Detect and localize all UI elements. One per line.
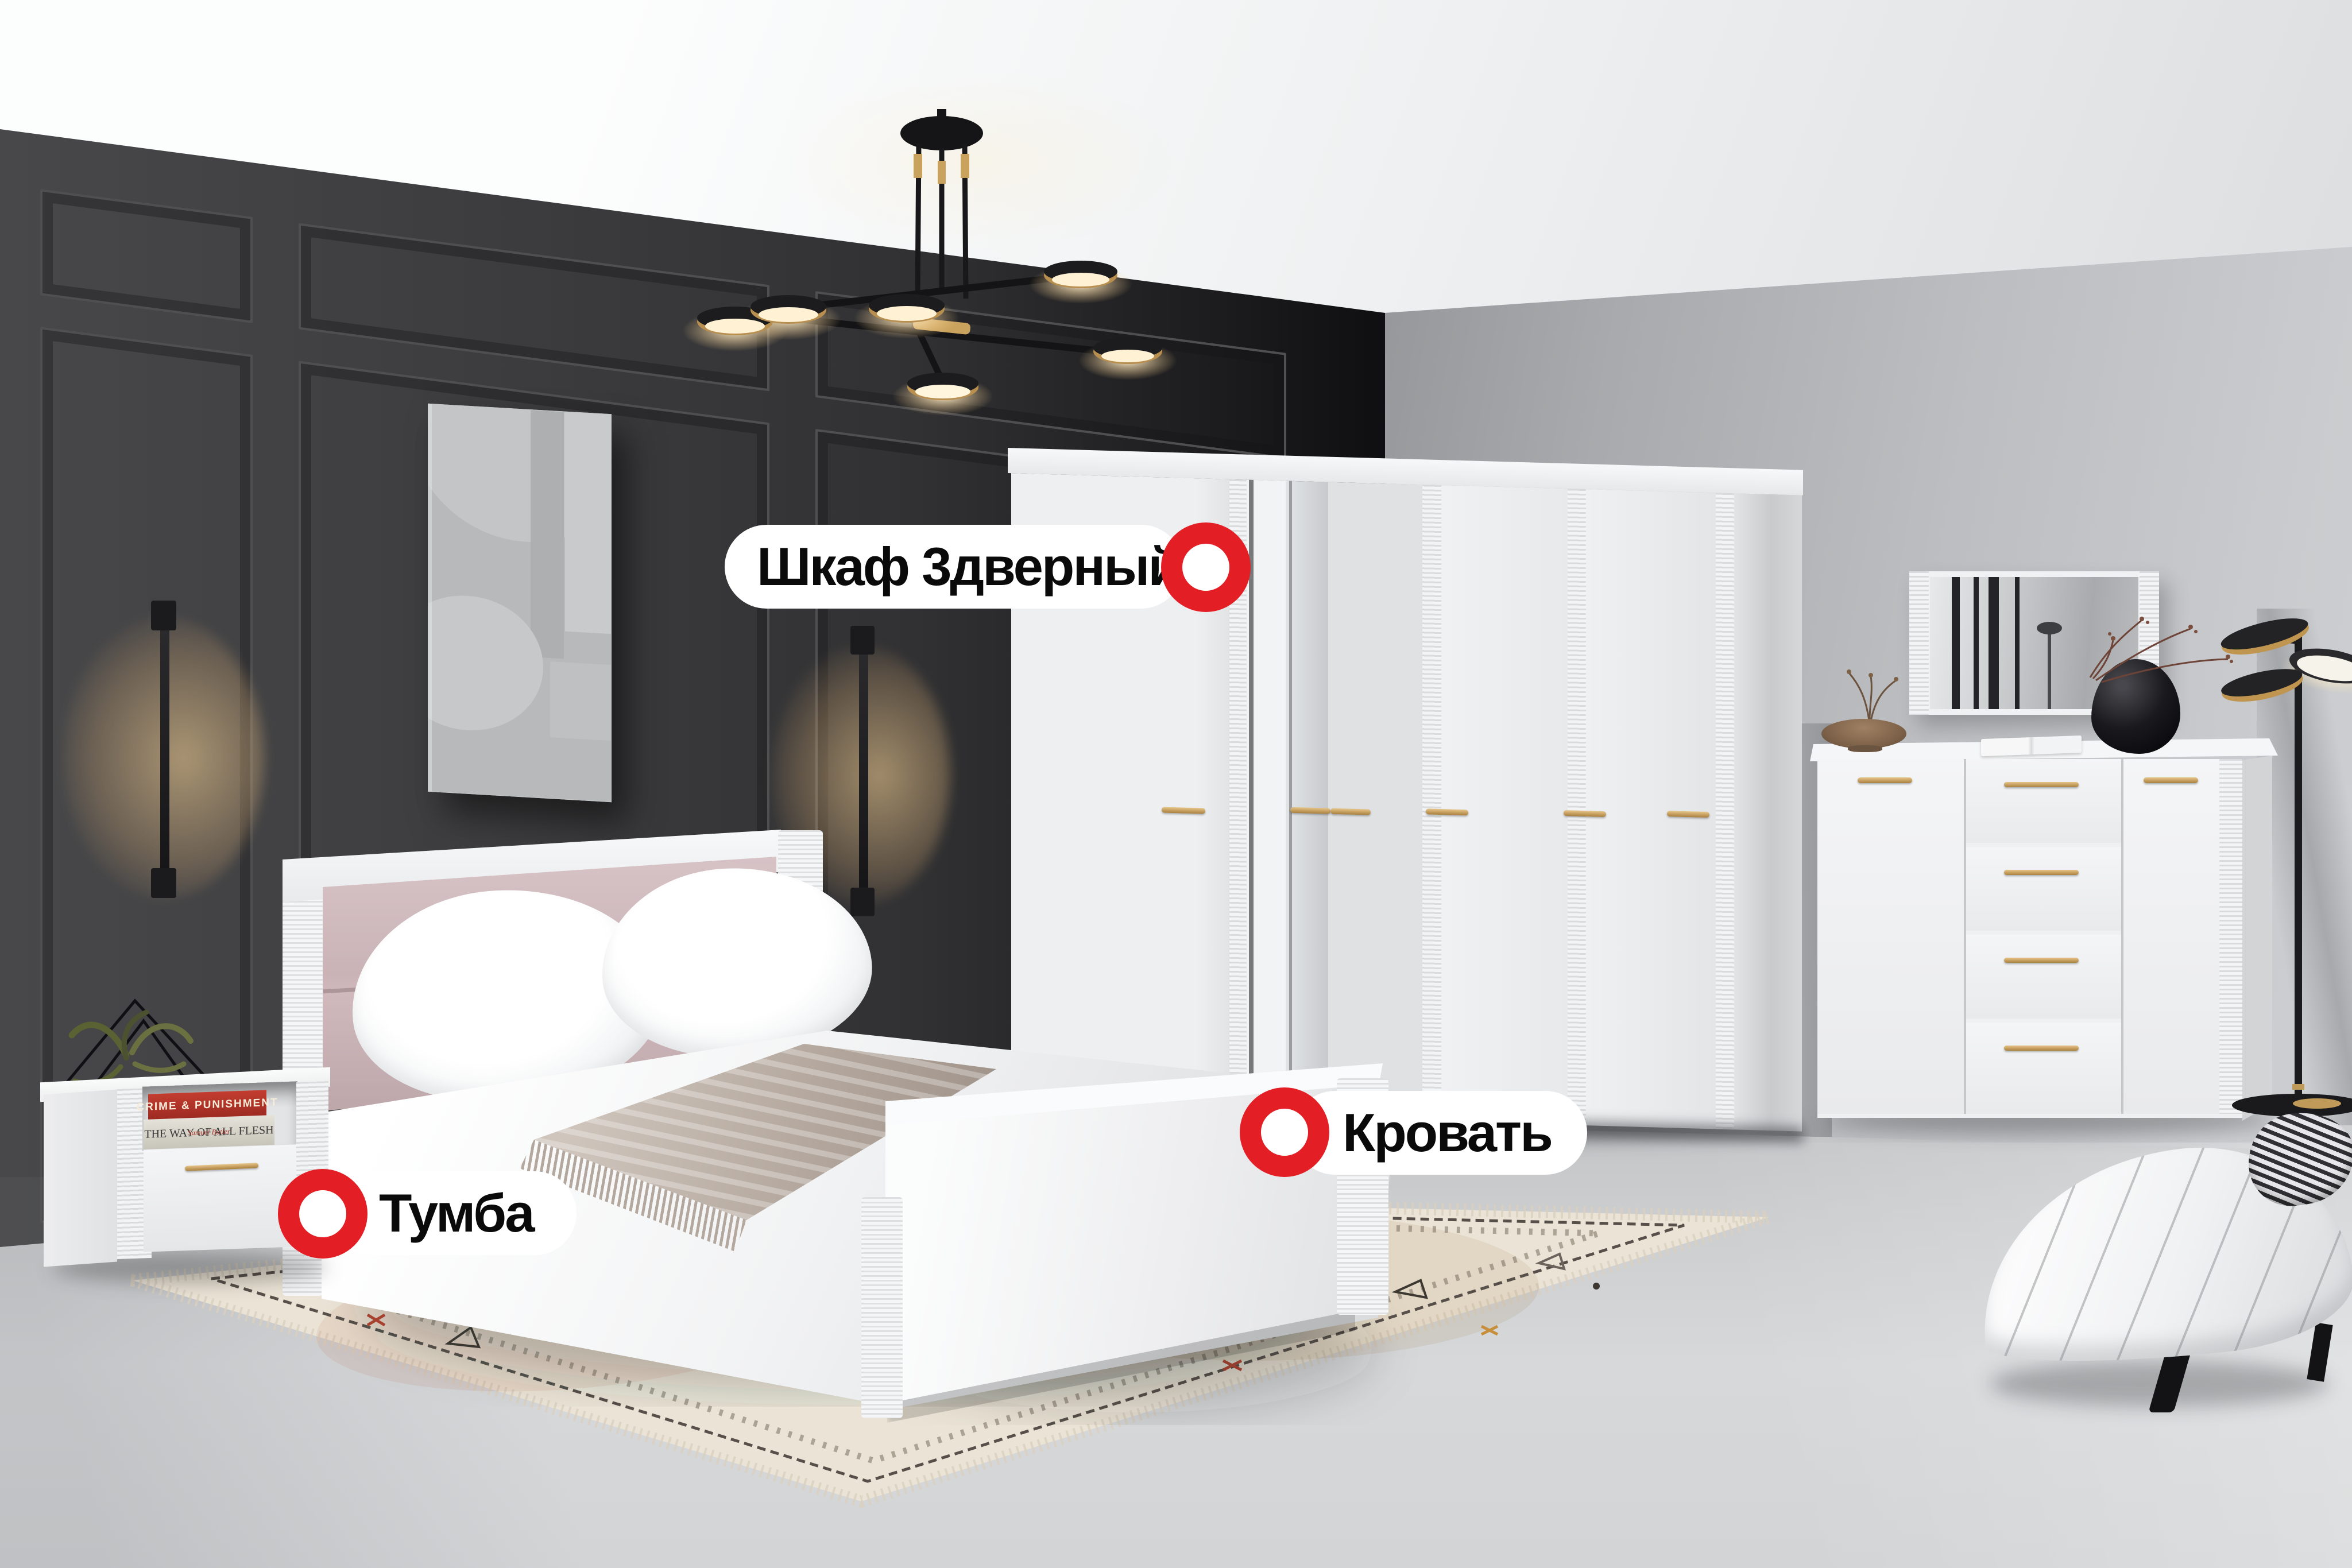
dresser-door bbox=[2123, 759, 2219, 1114]
dresser-handle bbox=[1858, 777, 1912, 783]
hotspot-label-text: Кровать bbox=[1343, 1102, 1552, 1164]
mirror-reflection-stripe bbox=[1974, 577, 1979, 709]
hotspot-marker-wardrobe[interactable] bbox=[1161, 522, 1251, 612]
sconce-cap bbox=[151, 868, 176, 898]
lamp-heads bbox=[682, 261, 1177, 416]
art-shape-column bbox=[565, 408, 612, 634]
decor-bowl bbox=[1821, 719, 1906, 749]
dresser bbox=[1817, 759, 2242, 1118]
hotspot-label-text: Шкаф 3дверный bbox=[757, 536, 1179, 598]
mirror-reflection-band bbox=[1255, 480, 1286, 1117]
wardrobe-handle bbox=[1667, 811, 1709, 818]
wardrobe-handle bbox=[1162, 807, 1205, 814]
art-shape-strip bbox=[531, 410, 564, 659]
open-book-decor bbox=[1981, 735, 2082, 756]
wardrobe-handle bbox=[1564, 810, 1606, 817]
hotspot-marker-nightstand[interactable] bbox=[278, 1169, 367, 1259]
nightstand-side bbox=[44, 1090, 117, 1267]
mirror-reflection-stripe bbox=[1952, 577, 1960, 709]
abstract-relief-art bbox=[428, 404, 612, 802]
hotspot-label-nightstand[interactable]: Тумба bbox=[331, 1171, 577, 1255]
wardrobe-handle bbox=[1290, 807, 1330, 814]
dresser-drawer bbox=[1966, 1023, 2121, 1114]
art-edge-highlight bbox=[428, 404, 432, 792]
art-shape-square bbox=[550, 661, 612, 741]
book-author: Samuel Butler bbox=[188, 1127, 230, 1138]
book-way-of-all-flesh: THE WAY OF ALL FLESH Samuel Butler bbox=[144, 1115, 274, 1149]
ceiling-pendant-lamp bbox=[660, 86, 1235, 431]
sconce-cap bbox=[850, 888, 875, 916]
dresser-handle bbox=[2144, 777, 2198, 783]
hotspot-label-bed[interactable]: Кровать bbox=[1293, 1091, 1587, 1175]
molding-panel bbox=[40, 189, 253, 323]
mirror-lamp-reflection bbox=[2048, 632, 2051, 709]
dresser-drawer bbox=[1966, 847, 2121, 931]
wall-sconce-icon bbox=[859, 629, 868, 909]
sconce-cap bbox=[151, 601, 176, 630]
dresser-door bbox=[1817, 759, 1964, 1114]
mirror-reflection-stripe bbox=[2015, 577, 2020, 709]
dresser-drawer bbox=[1966, 935, 2121, 1019]
dresser-handle bbox=[2004, 1046, 2079, 1051]
wall-sconce-icon bbox=[160, 604, 169, 898]
wardrobe-door bbox=[1328, 482, 1422, 1121]
wardrobe-trim bbox=[1716, 493, 1734, 1129]
decor-bowl-foot bbox=[1848, 745, 1882, 752]
bed-foot-post bbox=[861, 1197, 903, 1418]
mirror-reflection-line bbox=[1289, 481, 1292, 1117]
dried-sprig bbox=[1826, 660, 1912, 723]
book-title: CRIME & PUNISHMENT bbox=[136, 1097, 278, 1114]
dresser-handle bbox=[2004, 958, 2079, 963]
wardrobe-trim bbox=[1568, 489, 1586, 1125]
mirror-trim bbox=[1909, 571, 1929, 715]
dresser-drawer bbox=[1966, 759, 2121, 843]
wardrobe-corner-door bbox=[1586, 489, 1716, 1129]
mirror-reflection-stripe bbox=[1989, 577, 1999, 709]
hotspot-marker-bed[interactable] bbox=[1240, 1087, 1329, 1177]
wardrobe-corner-door bbox=[1441, 485, 1568, 1125]
sconce-cap bbox=[850, 626, 875, 655]
floor-lamp bbox=[2211, 597, 2352, 1137]
hotspot-label-wardrobe[interactable]: Шкаф 3дверный bbox=[725, 525, 1183, 609]
wardrobe-handle bbox=[1426, 808, 1468, 815]
dresser-handle bbox=[2004, 782, 2079, 787]
wardrobe-handle bbox=[1330, 808, 1371, 815]
wardrobe-mirror-door bbox=[1247, 480, 1328, 1118]
wardrobe-trim bbox=[1422, 485, 1441, 1121]
art-shape-blob bbox=[428, 591, 543, 734]
hotspot-label-text: Тумба bbox=[379, 1182, 533, 1244]
nightstand-drawer bbox=[144, 1144, 297, 1252]
dresser-handle bbox=[2004, 870, 2079, 875]
wardrobe-side-curved bbox=[1734, 493, 1802, 1131]
bedroom-scene: CRIME & PUNISHMENT THE WAY OF ALL FLESH … bbox=[0, 0, 2352, 1568]
